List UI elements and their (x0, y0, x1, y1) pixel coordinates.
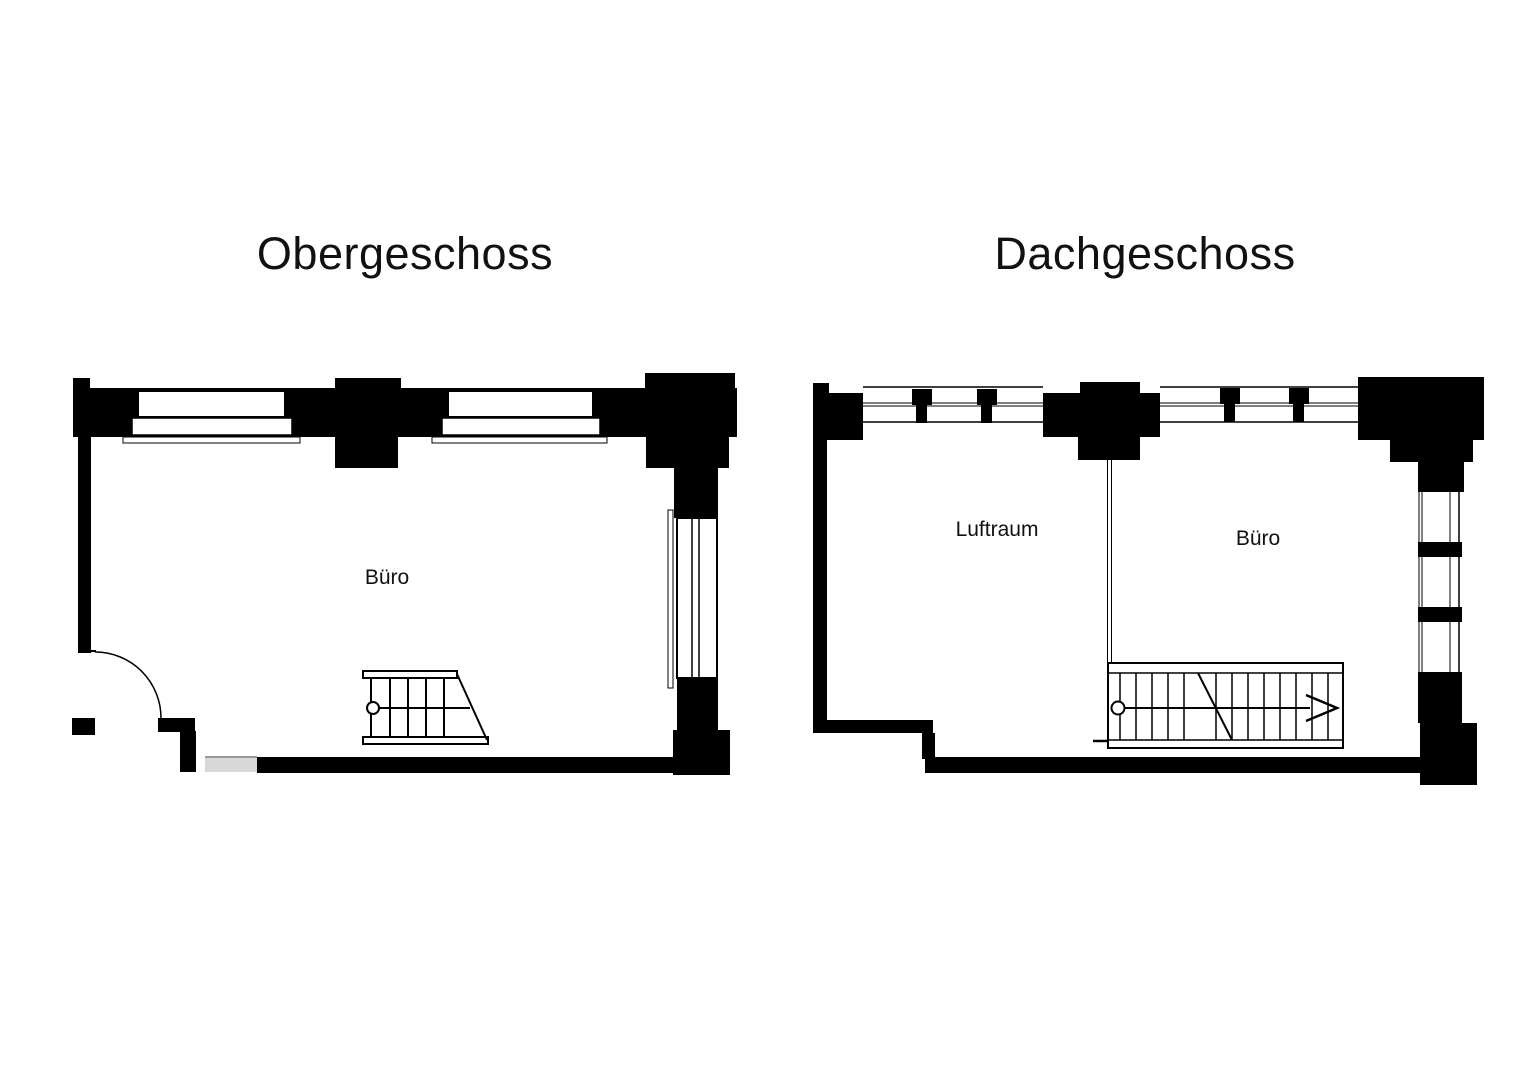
wall-corner-bottom-right (673, 730, 730, 775)
floor-plan-dachgeschoss: Luftraum Büro (800, 365, 1500, 795)
plan-title-obergeschoss: Obergeschoss (60, 228, 750, 280)
wall-pillar-center-bottom (1078, 437, 1140, 460)
stair-box (1108, 663, 1343, 748)
room-label-buero: Büro (1236, 527, 1280, 550)
window-frame (677, 518, 717, 678)
glazing-post (1220, 388, 1240, 404)
wall-segment (674, 468, 718, 518)
wall-segment (1418, 672, 1462, 723)
staircase (363, 671, 488, 744)
glazing-post (916, 404, 927, 423)
window-sill (132, 418, 292, 435)
right-glazing (1419, 492, 1459, 672)
wall-corner-top-right (1358, 377, 1484, 440)
window-sill-outer (668, 510, 673, 688)
floor-plan-obergeschoss: Büro (60, 365, 750, 790)
wall-bottom (925, 757, 1420, 773)
window-frame (448, 391, 593, 417)
door-swing-arc (95, 652, 161, 718)
wall-corner-bottom-right (1420, 723, 1477, 785)
wall-left (813, 393, 827, 720)
wall-segment (1390, 440, 1473, 462)
glazing-post (981, 404, 992, 423)
stair-start-circle (1112, 702, 1125, 715)
stair-rail-bottom (363, 737, 488, 744)
room-label-luftraum: Luftraum (956, 518, 1039, 541)
wall-pillar-center-top (1080, 382, 1140, 393)
wall-step (813, 720, 933, 733)
wall-step (180, 731, 196, 772)
wall-segment (646, 437, 729, 468)
glazing-post (1293, 403, 1304, 422)
window-sill-outer (123, 437, 300, 443)
wall-step (158, 718, 195, 732)
window-sill-outer (432, 437, 607, 443)
wall-door-jamb (72, 718, 95, 735)
glazing-post (977, 389, 997, 405)
staircase (1108, 663, 1343, 748)
door-threshold (205, 756, 257, 772)
threshold-gray (205, 756, 257, 772)
wall-segment (73, 378, 90, 389)
window-sill (442, 418, 600, 435)
wall-post (1418, 607, 1462, 622)
glazing-post (1224, 403, 1235, 422)
room-label-buero: Büro (365, 566, 409, 589)
wall-left (78, 437, 91, 653)
floor-plan-sheet: Obergeschoss Dachgeschoss (0, 0, 1534, 1080)
wall-step (922, 733, 935, 759)
plan-title-dachgeschoss: Dachgeschoss (800, 228, 1490, 280)
wall-pillar-center-top (335, 378, 401, 389)
wall-segment (677, 678, 718, 732)
wall-bottom (257, 757, 677, 773)
glazing-post (912, 389, 932, 405)
wall-pillar-center (335, 437, 398, 468)
wall-segment (645, 373, 735, 389)
door (87, 651, 161, 718)
glazing-post (1289, 388, 1309, 404)
stair-start-circle (367, 702, 379, 714)
window-frame (138, 391, 285, 417)
right-wall-window (668, 510, 717, 688)
stair-rail-top (363, 671, 457, 678)
wall-segment (813, 383, 829, 393)
wall-segment (1418, 462, 1464, 492)
wall-pillar-center (1043, 393, 1160, 437)
wall-post (1418, 542, 1462, 557)
